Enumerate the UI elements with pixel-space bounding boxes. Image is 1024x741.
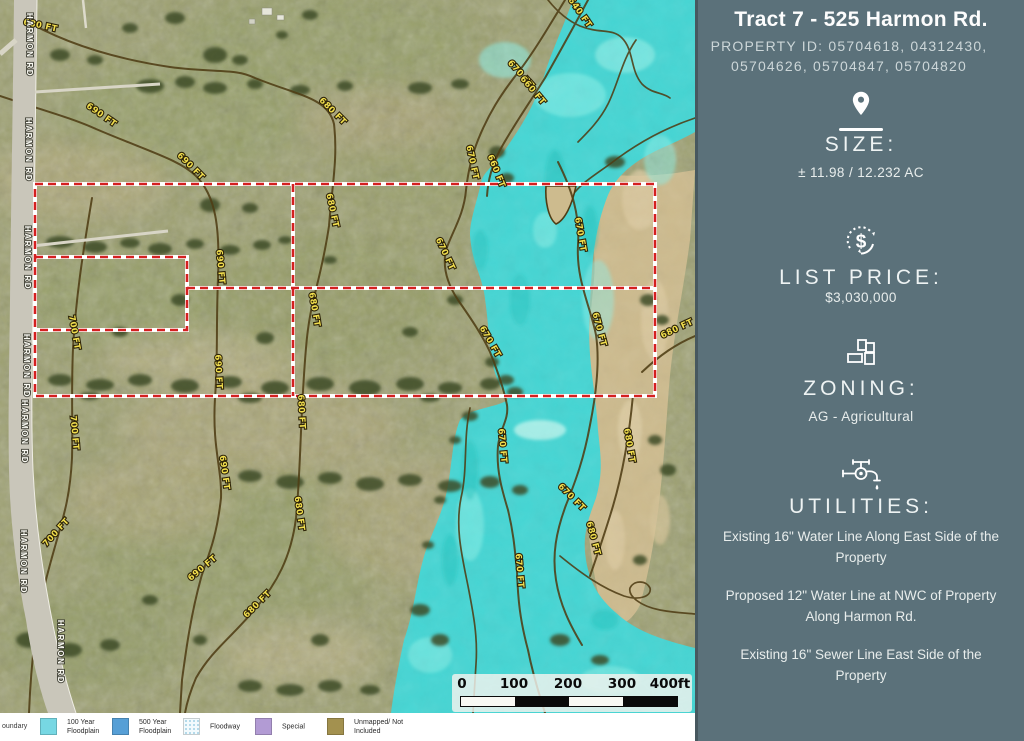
legend-swatch (255, 718, 272, 735)
utilities-heading: UTILITIES: (698, 495, 1024, 519)
scale-segments (460, 696, 678, 707)
scale-tick-label: 300 (608, 676, 636, 692)
road-label: HARMON RD (23, 226, 32, 290)
legend-swatch (40, 718, 57, 735)
svg-text:$: $ (856, 232, 867, 253)
utility-item: Proposed 12" Water Line at NWC of Proper… (715, 586, 1007, 628)
scale-tick-label: 200 (554, 676, 582, 692)
size-heading: SIZE: (698, 133, 1024, 157)
floodplain-overlay (390, 0, 695, 713)
location-pin-icon (698, 90, 1024, 131)
scale-tick-label: 100 (500, 676, 528, 692)
legend-swatch (327, 718, 344, 735)
legend-swatch (112, 718, 129, 735)
zoning-value: AG - Agricultural (698, 409, 1024, 424)
page-title: Tract 7 - 525 Harmon Rd. (698, 8, 1024, 32)
list-price-value: $3,030,000 (698, 290, 1024, 305)
utilities-list: Existing 16" Water Line Along East Side … (698, 527, 1024, 704)
legend-label: Unmapped/ Not Included (354, 718, 406, 736)
list-price-heading: LIST PRICE: (698, 266, 1024, 290)
road-label: HARMON RD (24, 118, 33, 182)
sidebar: Tract 7 - 525 Harmon Rd. PROPERTY ID: 05… (695, 0, 1024, 741)
property-flyer: 680 FT680 FT680 FT680 FT680 FT680 FT680 … (0, 0, 1024, 741)
dollar-cycle-icon: $ (698, 220, 1024, 262)
scale-tick-label: 400ft (650, 676, 691, 692)
aerial-map: 680 FT680 FT680 FT680 FT680 FT680 FT680 … (0, 0, 695, 713)
scale-bar: 0100200300400ft (452, 674, 692, 712)
road-label: HARMON RD (19, 530, 28, 594)
property-id: PROPERTY ID: 05704618, 04312430, 0570462… (698, 36, 1000, 77)
map-canvas: 680 FT680 FT680 FT680 FT680 FT680 FT680 … (0, 0, 695, 713)
legend-swatch (183, 718, 200, 735)
legend: oundary 100 Year Floodplain500 Year Floo… (0, 713, 695, 741)
scale-tick-label: 0 (457, 676, 466, 692)
legend-partial-boundary-label: oundary (2, 723, 27, 730)
faucet-icon (698, 458, 1024, 494)
road-label: HARMON RD (22, 334, 31, 398)
road-label: HARMON RD (20, 400, 29, 464)
zoning-heading: ZONING: (698, 377, 1024, 401)
road-label: HARMON RD (56, 620, 65, 684)
utility-item: Existing 16" Water Line Along East Side … (715, 527, 1007, 569)
utility-item: Existing 16" Sewer Line East Side of the… (715, 645, 1007, 687)
zoning-blocks-icon (698, 338, 1024, 368)
size-value: ± 11.98 / 12.232 AC (698, 165, 1024, 180)
contour-label: 690 FT (212, 354, 224, 389)
contour-label: 680 FT (295, 394, 307, 429)
road-label: HARMON RD (25, 13, 34, 77)
